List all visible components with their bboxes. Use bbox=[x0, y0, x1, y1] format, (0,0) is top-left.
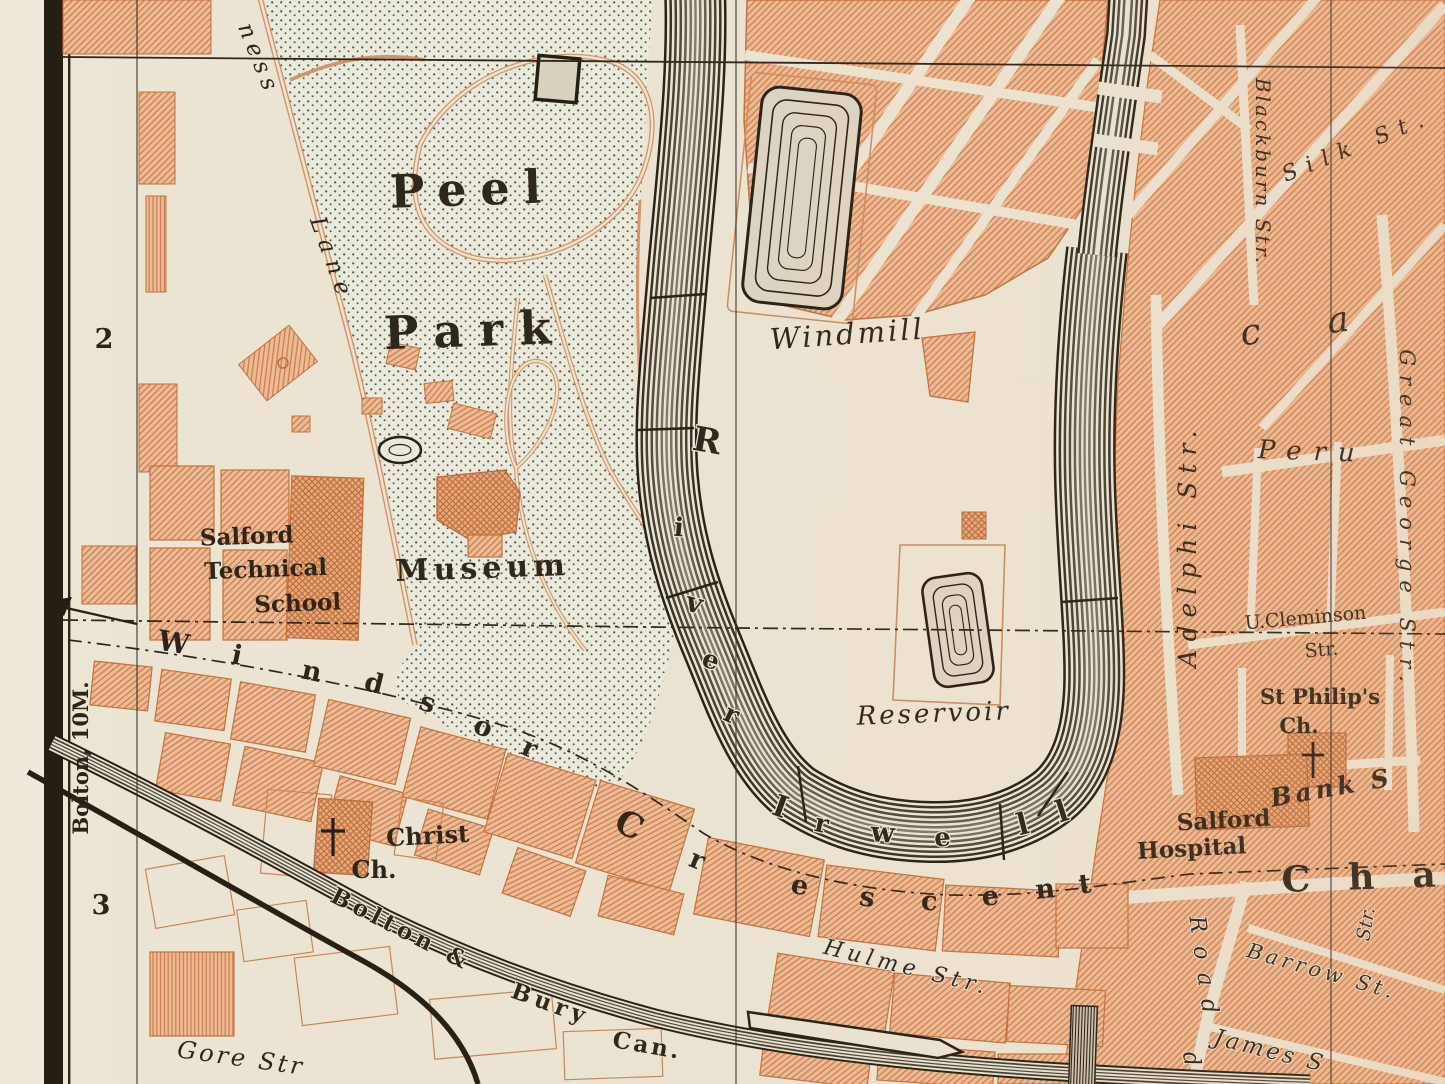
map-canvas: 2 3 Bolton, 10M. Peel Park Museum Salfor… bbox=[0, 0, 1445, 1084]
map-photo: 2 3 Bolton, 10M. Peel Park Museum Salfor… bbox=[0, 0, 1445, 1084]
photo-tint-overlay bbox=[0, 0, 1445, 1084]
